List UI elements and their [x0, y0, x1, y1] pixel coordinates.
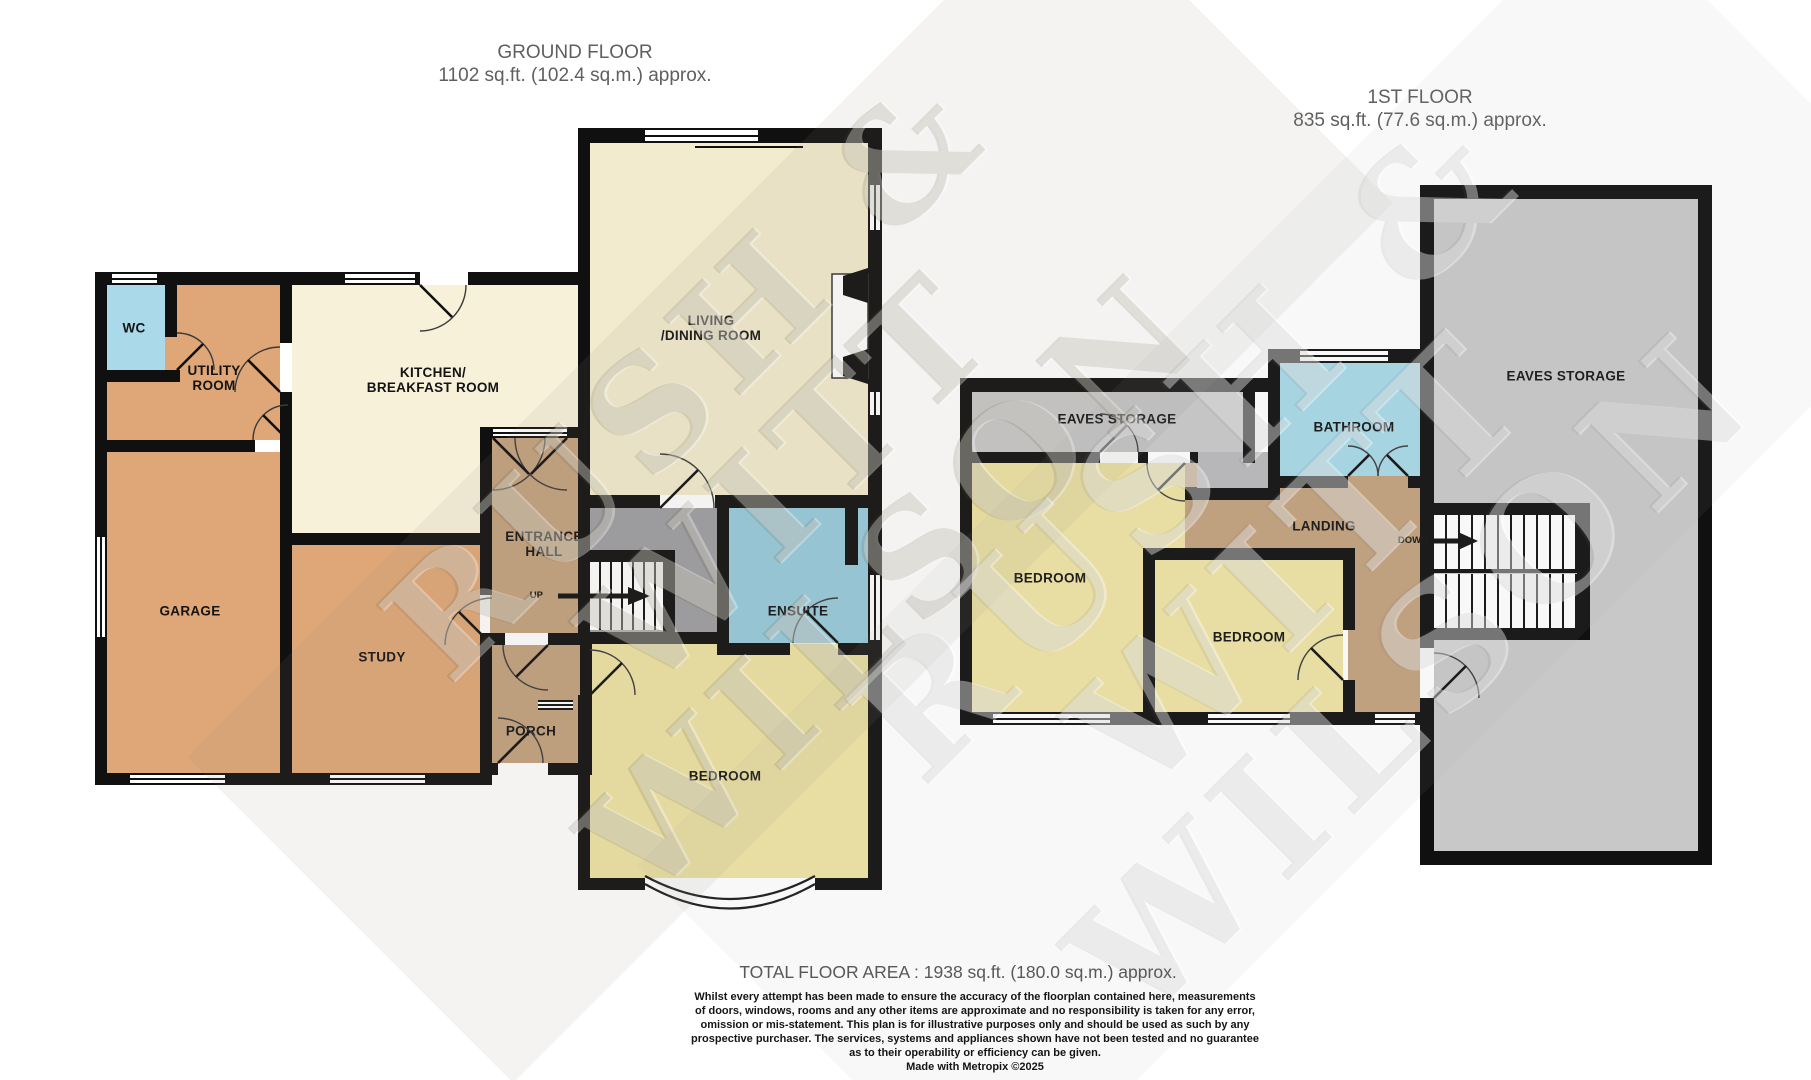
wall — [1420, 185, 1434, 648]
wall — [1408, 476, 1420, 488]
disclaimer-line: Whilst every attempt has been made to en… — [694, 990, 1255, 1004]
wall — [815, 878, 882, 890]
wall — [480, 763, 498, 775]
window — [330, 773, 425, 785]
label-line: KITCHEN/ — [367, 366, 499, 381]
room-label-kitchen: KITCHEN/ BREAKFAST ROOM — [367, 366, 499, 396]
room-label-entrance-hall: ENTRANCE HALL — [505, 530, 582, 560]
wall — [845, 508, 858, 565]
room-label-utility: UTILITY ROOM — [187, 364, 240, 394]
wall — [972, 452, 1100, 463]
room-label-porch: PORCH — [506, 725, 556, 740]
room-label-bedroom-ground: BEDROOM — [689, 770, 762, 785]
wall — [1420, 851, 1712, 865]
wall — [280, 533, 492, 545]
wall — [1343, 680, 1355, 712]
total-floor-area: TOTAL FLOOR AREA : 1938 sq.ft. (180.0 sq… — [739, 962, 1176, 983]
room-label-living: LIVING /DINING ROOM — [661, 314, 761, 344]
label-line: ROOM — [187, 379, 240, 394]
label-line: UTILITY — [187, 364, 240, 379]
wall — [280, 452, 292, 785]
wall — [1420, 185, 1712, 199]
wall — [1190, 452, 1198, 463]
room-label-eaves-large: EAVES STORAGE — [1507, 370, 1626, 385]
wall — [580, 878, 645, 890]
wall — [838, 643, 882, 655]
wall — [960, 378, 972, 725]
window — [1375, 712, 1415, 725]
wall — [1268, 349, 1280, 488]
ground-floor-title: GROUND FLOOR — [497, 42, 652, 65]
wall — [1143, 548, 1355, 560]
wall — [165, 285, 177, 337]
stairs-frame — [578, 550, 675, 562]
ground-floor-area: 1102 sq.ft. (102.4 sq.m.) approx. — [438, 65, 711, 88]
room-bedroom-ground — [590, 644, 868, 878]
wall — [95, 440, 255, 452]
wall — [1243, 392, 1255, 463]
window — [538, 700, 573, 710]
window — [1208, 712, 1290, 725]
stairs-down — [1434, 574, 1577, 628]
room-landing — [1348, 548, 1420, 712]
wall — [480, 427, 492, 595]
window — [112, 272, 157, 285]
first-floor-title: 1ST FLOOR — [1367, 87, 1472, 110]
stairwell-frame — [1577, 503, 1590, 640]
window — [95, 537, 107, 637]
wall — [280, 392, 292, 452]
stairwell-frame — [1426, 503, 1590, 515]
stairs-up-label: UP — [530, 590, 543, 601]
disclaimer-line: as to their operability or efficiency ca… — [849, 1046, 1101, 1060]
stairs-down — [1434, 515, 1577, 569]
window — [1300, 349, 1388, 363]
wall — [480, 645, 492, 775]
room-label-bedroom-left: BEDROOM — [1014, 572, 1087, 587]
room-label-eaves-small: EAVES STORAGE — [1058, 413, 1177, 428]
wall — [1698, 185, 1712, 865]
wall — [717, 643, 790, 655]
room-label-landing: LANDING — [1292, 520, 1356, 535]
wall — [1343, 548, 1355, 630]
wall — [1143, 548, 1155, 712]
wall — [280, 272, 292, 343]
wall — [1268, 476, 1348, 488]
bay-window — [645, 876, 815, 909]
wall — [868, 128, 882, 890]
room-label-bedroom-right: BEDROOM — [1213, 631, 1286, 646]
stairs-up — [590, 562, 663, 630]
wall — [578, 695, 590, 890]
wall — [95, 370, 180, 382]
label-line: LIVING — [661, 314, 761, 329]
wall — [578, 128, 590, 508]
window-line — [695, 146, 803, 148]
room-label-ensuite: ENSUITE — [768, 605, 829, 620]
wall — [1138, 452, 1148, 463]
window — [868, 185, 882, 230]
wall — [717, 508, 729, 655]
wall — [1185, 487, 1197, 500]
disclaimer-line: of doors, windows, rooms and any other i… — [695, 1004, 1255, 1018]
disclaimer-line: prospective purchaser. The services, sys… — [691, 1032, 1259, 1046]
room-label-garage: GARAGE — [159, 605, 220, 620]
window — [493, 427, 567, 438]
window — [645, 128, 758, 143]
wall — [1420, 698, 1434, 865]
disclaimer-line: omission or mis-statement. This plan is … — [701, 1018, 1250, 1032]
door-opening — [420, 272, 468, 285]
label-line: HALL — [505, 545, 582, 560]
label-line: /DINING ROOM — [661, 329, 761, 344]
room-label-bathroom: BATHROOM — [1314, 421, 1395, 436]
credit: Made with Metropix ©2025 — [906, 1060, 1044, 1074]
wall — [95, 272, 582, 285]
window — [868, 392, 882, 415]
window — [993, 712, 1110, 725]
stairs-frame — [663, 550, 675, 644]
room-label-study: STUDY — [358, 651, 405, 666]
wall — [578, 632, 717, 644]
window — [868, 575, 882, 640]
wall — [960, 378, 1270, 392]
wall — [95, 272, 107, 785]
window — [130, 773, 225, 785]
wall — [578, 495, 660, 508]
stairs-divider — [1434, 569, 1577, 573]
stairwell-frame — [1426, 628, 1590, 640]
wall — [480, 633, 505, 645]
room-label-wc: WC — [122, 322, 145, 337]
label-line: BREAKFAST ROOM — [367, 381, 499, 396]
wall — [1197, 488, 1280, 500]
first-floor-area: 835 sq.ft. (77.6 sq.m.) approx. — [1293, 110, 1546, 133]
label-line: ENTRANCE — [505, 530, 582, 545]
wall — [715, 495, 882, 508]
window — [345, 272, 415, 285]
floorplan-page: GROUND FLOOR 1102 sq.ft. (102.4 sq.m.) a… — [0, 0, 1811, 1080]
stairs-down-label: DOWN — [1398, 535, 1428, 546]
